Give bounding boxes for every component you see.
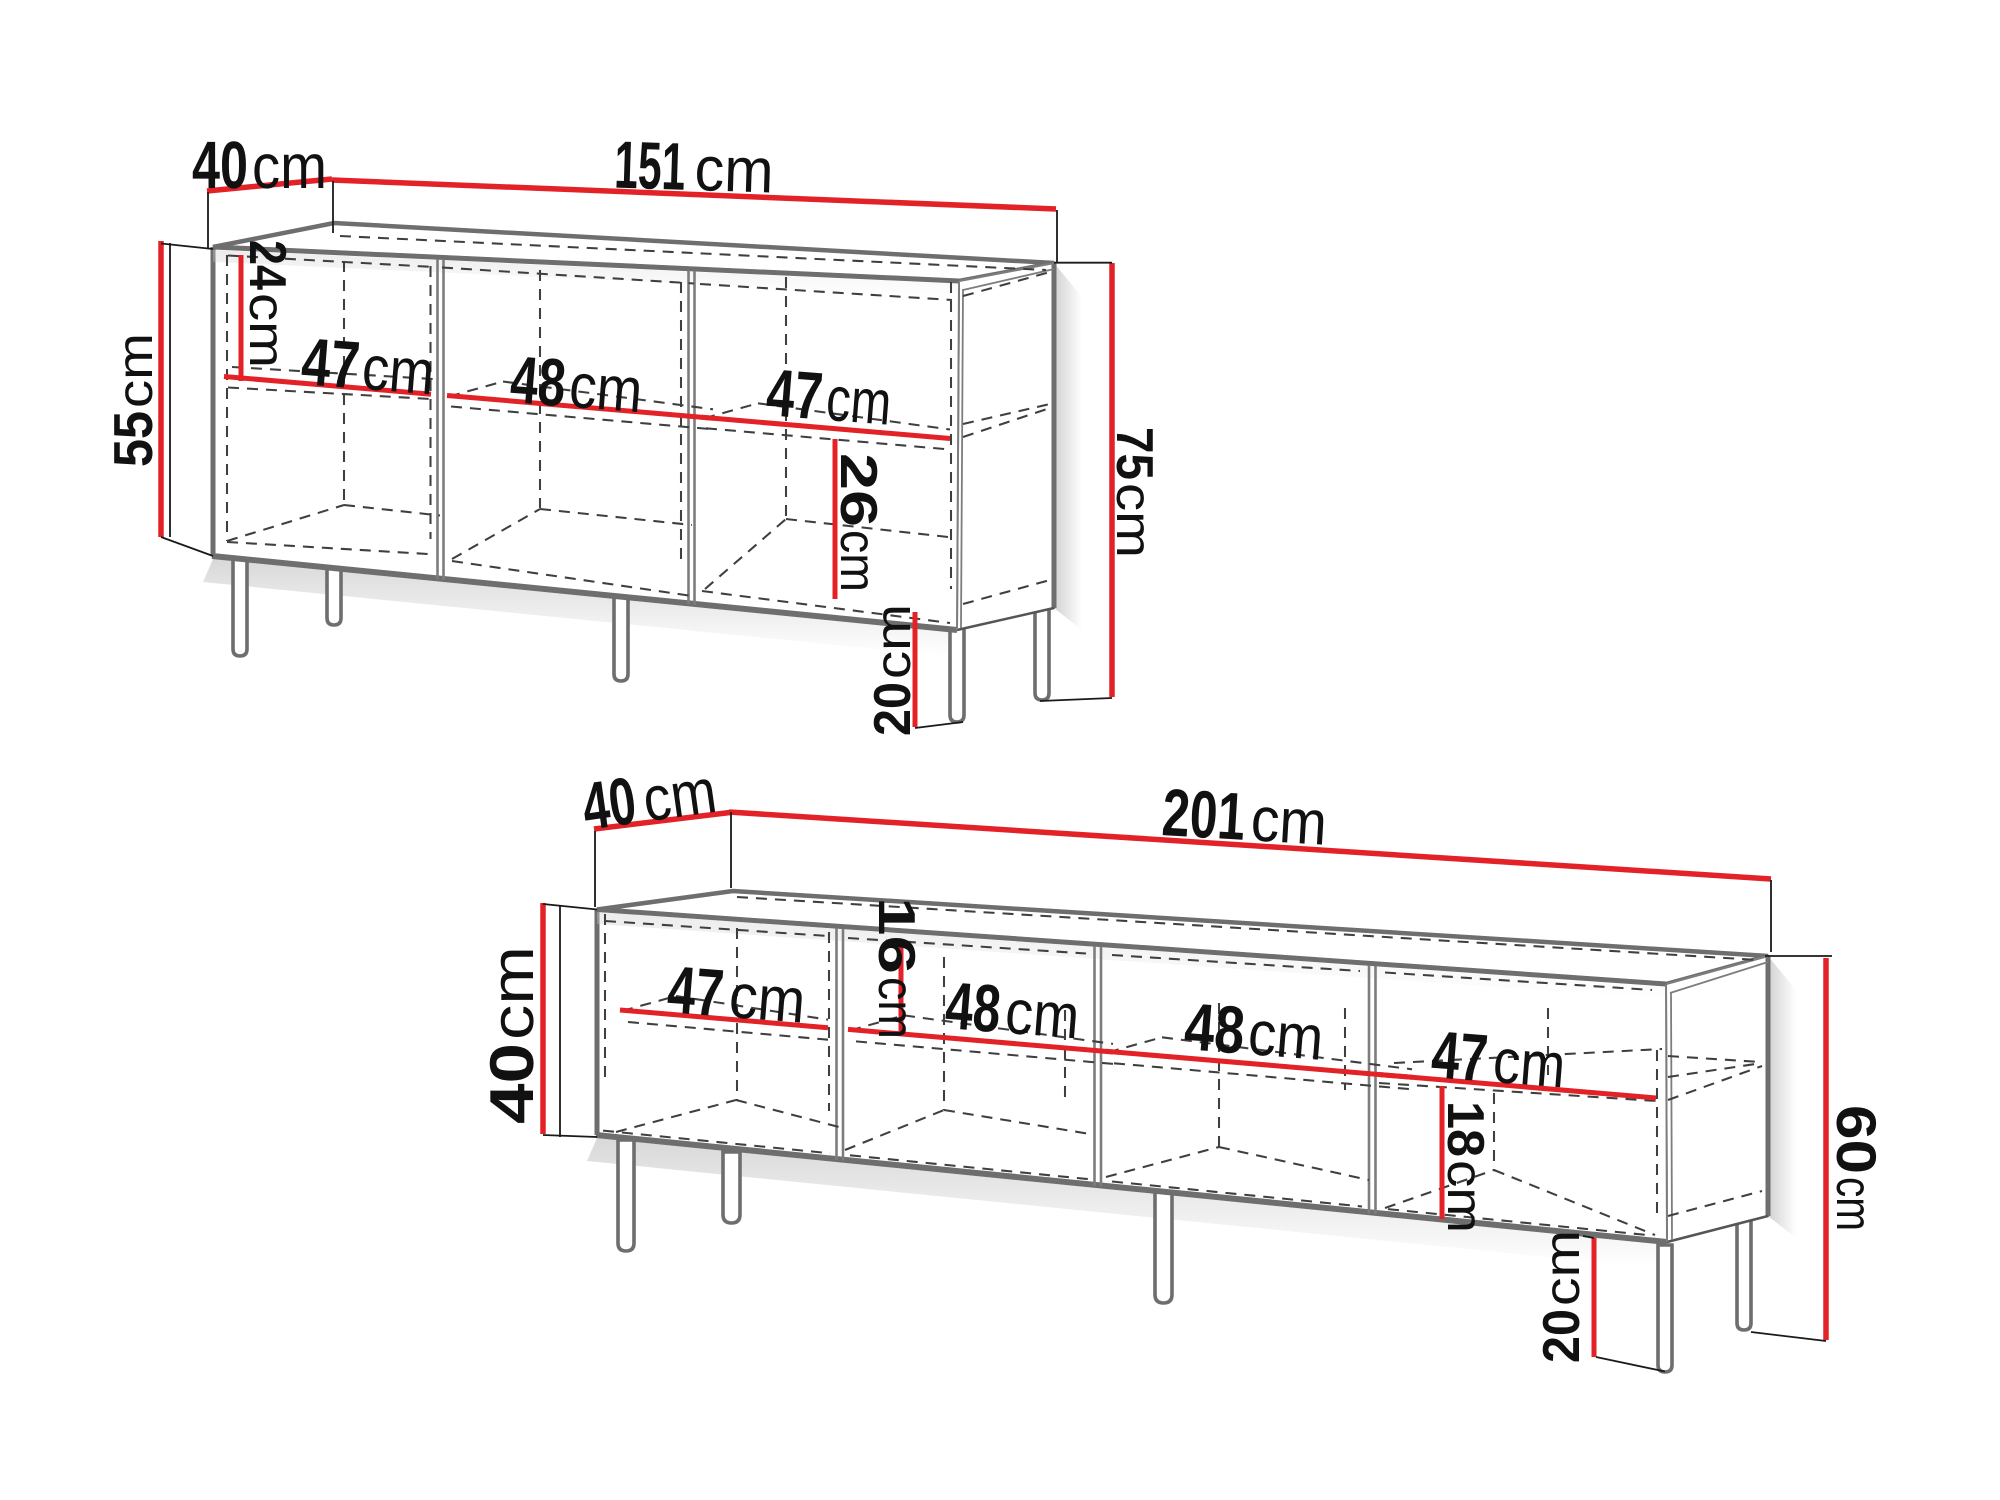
svg-text:cm: cm xyxy=(1003,977,1082,1053)
svg-text:60: 60 xyxy=(1825,1105,1888,1174)
svg-text:55: 55 xyxy=(102,411,164,467)
svg-text:47: 47 xyxy=(1429,1017,1491,1096)
svg-text:26: 26 xyxy=(829,453,887,527)
svg-text:cm: cm xyxy=(727,961,808,1037)
svg-text:cm: cm xyxy=(694,134,775,206)
svg-text:cm: cm xyxy=(239,293,295,368)
svg-text:201: 201 xyxy=(1160,775,1247,855)
svg-text:cm: cm xyxy=(1106,483,1162,558)
svg-text:47: 47 xyxy=(665,952,727,1031)
svg-text:47: 47 xyxy=(764,355,826,434)
svg-text:24: 24 xyxy=(238,240,296,290)
svg-text:40: 40 xyxy=(578,763,641,845)
svg-text:cm: cm xyxy=(868,977,924,1039)
svg-text:47: 47 xyxy=(299,324,363,403)
svg-text:cm: cm xyxy=(360,333,437,408)
svg-text:48: 48 xyxy=(508,342,569,421)
svg-text:cm: cm xyxy=(107,333,163,408)
svg-text:cm: cm xyxy=(252,132,327,202)
svg-text:40: 40 xyxy=(478,1043,547,1124)
svg-text:cm: cm xyxy=(1249,784,1329,858)
svg-text:cm: cm xyxy=(1534,1230,1590,1306)
svg-text:cm: cm xyxy=(479,946,546,1040)
svg-text:20: 20 xyxy=(1533,1309,1591,1363)
svg-text:cm: cm xyxy=(639,756,721,835)
svg-text:cm: cm xyxy=(865,604,921,679)
svg-text:20: 20 xyxy=(864,682,922,736)
svg-text:cm: cm xyxy=(1437,1160,1493,1233)
svg-text:cm: cm xyxy=(1246,998,1326,1074)
svg-text:40: 40 xyxy=(192,128,248,203)
svg-text:16: 16 xyxy=(867,897,925,974)
svg-text:cm: cm xyxy=(1826,1177,1882,1231)
svg-text:18: 18 xyxy=(1436,1101,1494,1157)
svg-text:cm: cm xyxy=(830,530,886,592)
svg-text:cm: cm xyxy=(824,364,894,439)
svg-text:48: 48 xyxy=(943,968,1004,1047)
svg-text:cm: cm xyxy=(1491,1026,1568,1101)
svg-text:48: 48 xyxy=(1182,989,1248,1068)
svg-text:151: 151 xyxy=(613,128,686,205)
svg-text:75: 75 xyxy=(1105,427,1163,480)
svg-text:cm: cm xyxy=(567,351,645,427)
